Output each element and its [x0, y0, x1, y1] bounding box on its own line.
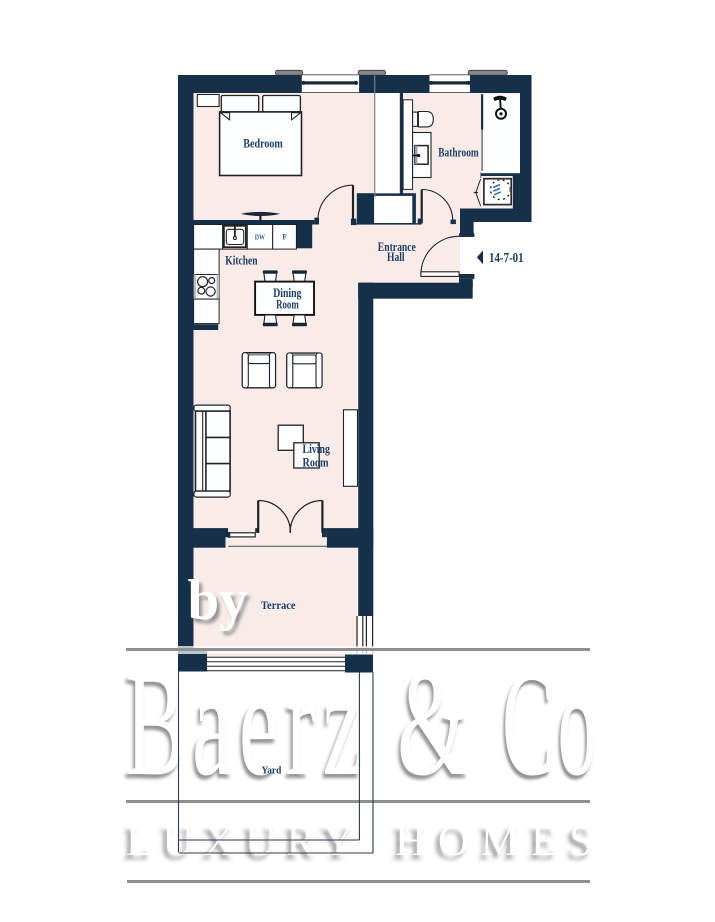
svg-text:Yard: Yard: [262, 766, 282, 777]
